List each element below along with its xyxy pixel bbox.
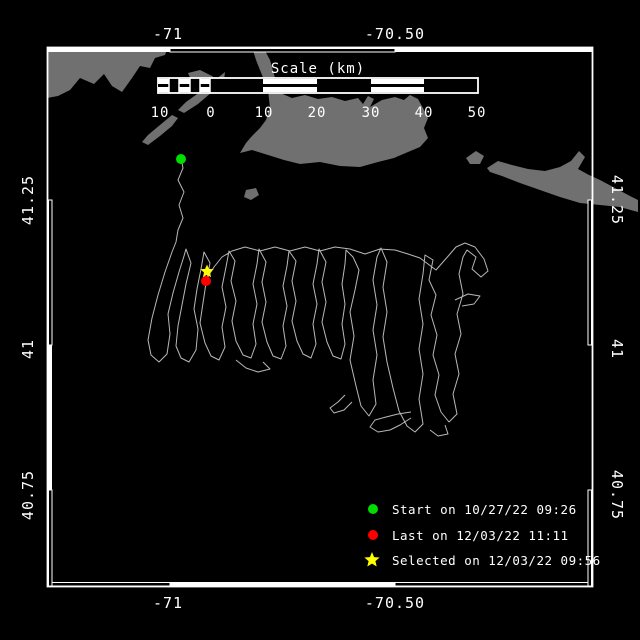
legend-start-icon bbox=[368, 504, 378, 514]
scale-tick: 10 bbox=[255, 105, 274, 121]
frame-tick bbox=[395, 48, 592, 52]
frame-tick bbox=[48, 48, 170, 52]
frame-tick bbox=[49, 490, 53, 586]
frame-tick bbox=[48, 345, 52, 490]
frame-tick bbox=[48, 583, 170, 587]
scale-tick: 10 bbox=[151, 105, 170, 121]
legend-start-label: Start on 10/27/22 09:26 bbox=[392, 502, 577, 517]
axis-label-top-lon-1: -71 bbox=[153, 25, 183, 43]
legend-last-label: Last on 12/03/22 11:11 bbox=[392, 528, 569, 543]
axis-label-right-lat-3: 40.75 bbox=[608, 470, 626, 520]
axis-label-right-lat-2: 41 bbox=[608, 339, 626, 359]
legend: Start on 10/27/22 09:26 Last on 12/03/22… bbox=[364, 502, 600, 568]
axis-label-bottom-lon-1: -71 bbox=[153, 594, 183, 612]
legend-selected-label: Selected on 12/03/22 09:56 bbox=[392, 553, 601, 568]
axis-label-left-lat-3: 40.75 bbox=[19, 470, 37, 520]
legend-last-icon bbox=[368, 530, 378, 540]
map-plot: -71 -70.50 -71 -70.50 41.25 41 40.75 41.… bbox=[0, 0, 640, 640]
axis-label-left-lat-1: 41.25 bbox=[19, 175, 37, 225]
axis-label-left-lat-2: 41 bbox=[19, 339, 37, 359]
scale-tick: 0 bbox=[206, 105, 215, 121]
scale-tick: 20 bbox=[308, 105, 327, 121]
last-marker[interactable] bbox=[201, 276, 211, 286]
scale-tick: 50 bbox=[468, 105, 487, 121]
map-canvas: -71 -70.50 -71 -70.50 41.25 41 40.75 41.… bbox=[0, 0, 640, 640]
frame-tick bbox=[170, 49, 395, 53]
axis-label-top-lon-2: -70.50 bbox=[365, 25, 425, 43]
frame-tick bbox=[49, 200, 53, 345]
scale-tick: 40 bbox=[415, 105, 434, 121]
start-marker[interactable] bbox=[176, 154, 186, 164]
scale-bar-title: Scale (km) bbox=[271, 61, 365, 77]
frame-tick bbox=[588, 490, 592, 586]
map-background bbox=[0, 0, 640, 640]
frame-tick bbox=[170, 582, 395, 586]
axis-label-bottom-lon-2: -70.50 bbox=[365, 594, 425, 612]
frame-tick bbox=[588, 200, 592, 345]
frame-tick bbox=[395, 583, 592, 587]
axis-label-right-lat-1: 41.25 bbox=[608, 175, 626, 225]
scale-tick: 30 bbox=[362, 105, 381, 121]
